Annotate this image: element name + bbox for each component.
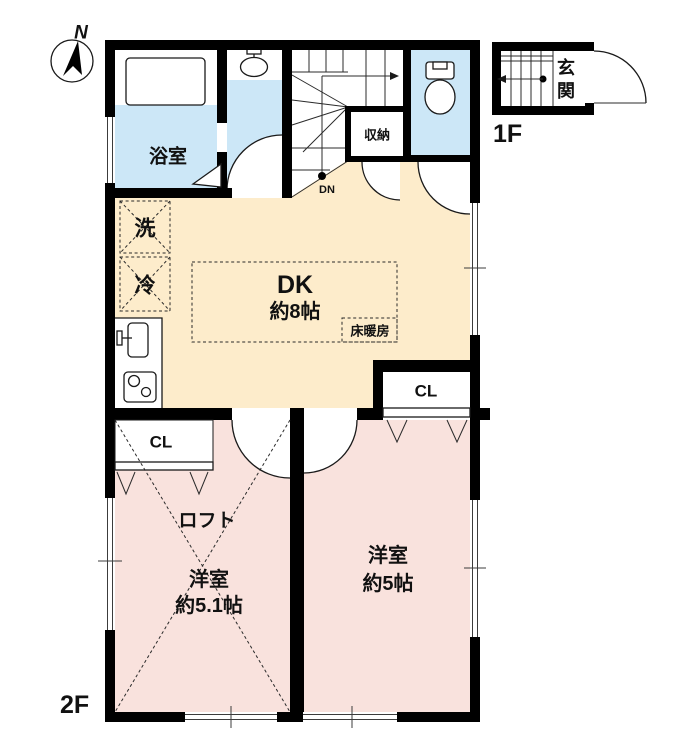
closet-dk-front-panel: [383, 408, 470, 417]
stove-icon: [124, 372, 156, 402]
loft-label: ロフト: [178, 511, 235, 532]
washbasin-icon: [241, 49, 268, 77]
bathtub-icon: [126, 58, 205, 105]
floor-plan-drawing: N DN: [0, 0, 686, 750]
kitchen-sink-icon: [128, 323, 148, 357]
dk-size-label: 約8帖: [269, 299, 320, 323]
fridge-label: 冷: [135, 274, 156, 298]
compass: N: [51, 23, 93, 83]
wall-outer-top: [105, 40, 480, 50]
bedroom-left-door-opening: [232, 408, 290, 420]
entrance-1f: 玄 関 1F: [492, 42, 646, 148]
kitchen-counter: [115, 318, 162, 408]
bedroom-right-label: 洋室: [368, 543, 408, 567]
entrance-wall-top: [492, 42, 594, 51]
floor-2f-label: 2F: [60, 691, 89, 719]
bathroom-door-opening: [217, 123, 227, 152]
wall-dk-closet-top: [373, 360, 470, 372]
bedroom-right-door-opening: [304, 408, 357, 420]
dk-label: DK: [277, 271, 313, 299]
bedroom-left-window-west: [105, 498, 115, 630]
washer-label: 洗: [135, 218, 156, 241]
stairs-down-label: DN: [319, 184, 335, 196]
bathroom-window: [105, 117, 115, 183]
wall-storage-top: [345, 106, 403, 112]
entrance-door-arc: [594, 51, 646, 103]
entrance-door-opening: [585, 51, 594, 103]
toilet-bowl-icon: [425, 80, 455, 114]
wall-washroom-stairs: [282, 50, 292, 198]
wall-toilet-south: [403, 155, 470, 162]
entrance-label-char-top: 玄: [557, 57, 575, 78]
bedroom-right-window-south: [303, 712, 397, 722]
entrance-wall-bottom: [492, 106, 594, 115]
compass-needle-icon: [63, 41, 82, 76]
stair-down-dot-icon: [318, 172, 326, 180]
wall-dk-closet-left: [373, 360, 383, 408]
closet-dk-label: CL: [415, 382, 438, 401]
bedroom-left-size-label: 約5.1帖: [175, 593, 243, 617]
entrance-label-char-bottom: 関: [557, 81, 575, 101]
washbasin-bowl-icon: [241, 58, 268, 77]
stove-burner-large-icon: [129, 376, 140, 387]
dk-window-east: [470, 203, 480, 335]
washroom-door-opening: [227, 188, 282, 198]
wall-between-bedrooms: [290, 420, 304, 712]
floor-heating-label: 床暖房: [350, 324, 389, 339]
kitchen-faucet-icon: [117, 331, 122, 345]
closet-bedroom-left-label: CL: [150, 433, 173, 452]
stove-burner-small-icon: [142, 388, 151, 397]
floor-plan-page: N DN: [0, 0, 686, 750]
wall-bathroom-south: [115, 188, 232, 198]
storage-label: 収納: [364, 128, 390, 143]
compass-north-label: N: [74, 23, 89, 44]
wall-stairs-toilet: [403, 50, 411, 162]
toilet-tank-lid-icon: [433, 62, 447, 69]
wall-storage-left: [345, 106, 351, 156]
floor-1f-label: 1F: [493, 120, 522, 148]
closet-bedroom-left-front-panel: [115, 462, 213, 470]
wall-outer-bottom: [105, 712, 480, 722]
bathroom-label: 浴室: [149, 145, 187, 168]
bedroom-right-size-label: 約5帖: [362, 571, 413, 595]
wall-storage-bottom: [345, 156, 403, 162]
toilet-icon: [425, 62, 455, 114]
bedroom-left-label: 洋室: [189, 567, 229, 591]
